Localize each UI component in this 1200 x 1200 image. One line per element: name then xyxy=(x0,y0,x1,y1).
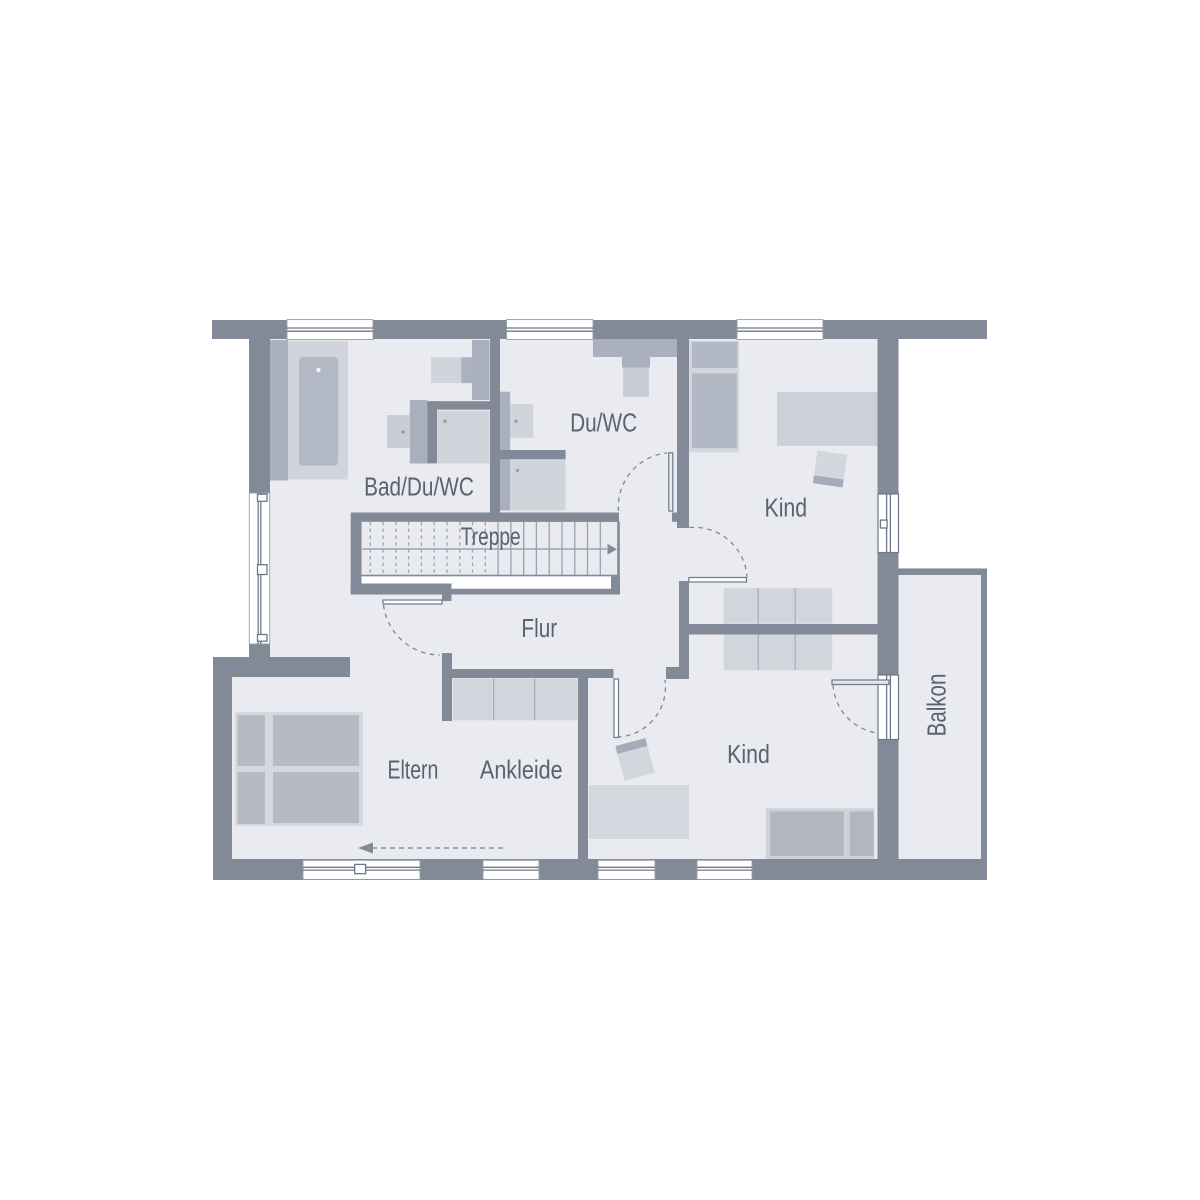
svg-text:Balkon: Balkon xyxy=(922,674,951,737)
svg-text:Kind: Kind xyxy=(727,740,770,770)
svg-text:Du/WC: Du/WC xyxy=(570,408,637,437)
svg-text:Flur: Flur xyxy=(521,614,557,643)
svg-text:Treppe: Treppe xyxy=(461,523,521,551)
svg-text:Kind: Kind xyxy=(764,493,807,523)
svg-text:Ankleide: Ankleide xyxy=(480,755,563,784)
svg-text:Eltern: Eltern xyxy=(387,755,438,784)
svg-text:Bad/Du/WC: Bad/Du/WC xyxy=(364,472,474,501)
